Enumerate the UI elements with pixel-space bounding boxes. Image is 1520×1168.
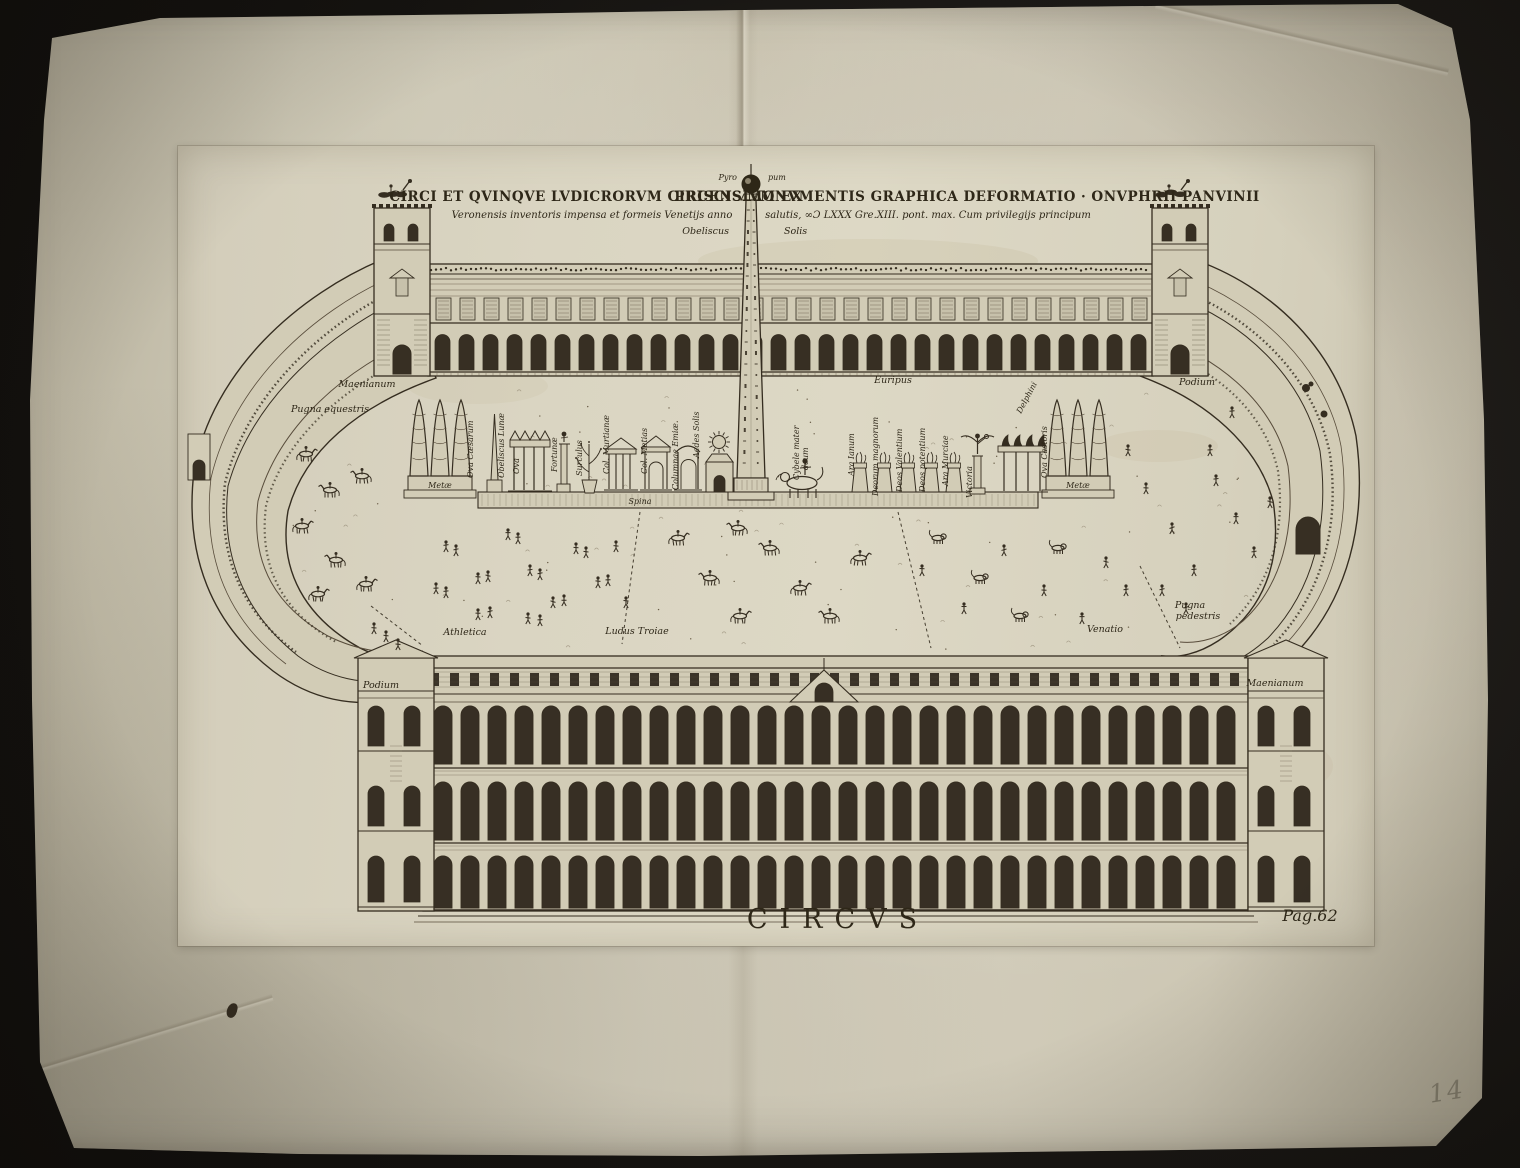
label-ludus-troiae: Ludus Troiae bbox=[604, 626, 669, 637]
label-spina: Spina bbox=[628, 497, 651, 506]
obelisk-name-left: Obeliscus bbox=[682, 226, 729, 237]
label-euripus: Euripus bbox=[873, 375, 912, 386]
label-maenianum-bottom: Maenianum bbox=[1245, 678, 1303, 689]
photograph-background: CIRCI ET QVINQVE LVDICRORVM CIRCENSIVM E… bbox=[0, 0, 1520, 1168]
title-line2-right: salutis, ∞Ɔ LXXX Gre.XIII. pont. max. Cu… bbox=[765, 210, 1091, 221]
label-fortunae: Fortunæ bbox=[550, 437, 559, 473]
label-pugna-pedestris-1: Pugna bbox=[1174, 600, 1206, 611]
label-venatio: Venatio bbox=[1087, 624, 1123, 635]
label-pugna-equestris: Pugna equestris bbox=[290, 404, 369, 415]
page-reference: Pag.62 bbox=[1281, 906, 1337, 925]
label-podium-left: Podium bbox=[362, 680, 399, 691]
title-line2-left: Veronensis inventoris impensa et formeis… bbox=[452, 210, 733, 221]
label-deos-valentium: Deos Valentium bbox=[895, 428, 904, 493]
label-podium-right: Podium bbox=[1178, 377, 1215, 388]
label-pugna-pedestris-2: pedestris bbox=[1176, 611, 1221, 622]
label-ova: Ova bbox=[512, 458, 521, 474]
label-deorum-magnorum: Deorum magnorum bbox=[871, 417, 880, 497]
label-col-metias: Col. Metias bbox=[640, 428, 649, 474]
bottom-facade bbox=[354, 640, 1328, 922]
label-surculus: Surculus bbox=[575, 440, 584, 476]
label-delphini: Delphini bbox=[1014, 380, 1039, 416]
arena-dividers bbox=[371, 512, 1180, 648]
obelisk-top-label-right: pum bbox=[768, 173, 786, 182]
engraved-plate: CIRCI ET QVINQVE LVDICRORVM CIRCENSIVM E… bbox=[178, 146, 1374, 946]
label-columnae-emiae: Columnae Emiæ bbox=[671, 423, 680, 490]
label-obeliscus-lunae: Obeliscus Lunæ bbox=[497, 412, 506, 478]
label-col-murtianae: Col. Murtianæ bbox=[602, 415, 611, 474]
circus-engraving: CIRCI ET QVINQVE LVDICRORVM CIRCENSIVM E… bbox=[178, 146, 1374, 946]
label-meta-right: Metæ bbox=[1065, 481, 1090, 490]
label-meta-left: Metæ bbox=[427, 481, 452, 490]
label-ara-murciae: Ara Murciae bbox=[941, 435, 950, 487]
label-aedes-solis: Aedes Solis bbox=[692, 411, 701, 459]
label-ara-ianum: Ara Ianum bbox=[847, 433, 856, 477]
label-maenianum-top: Maenianum bbox=[337, 379, 395, 390]
label-cybele-line2: deum bbox=[801, 447, 810, 470]
obelisk-name-right: Solis bbox=[784, 226, 807, 237]
paper-sheet: CIRCI ET QVINQVE LVDICRORVM CIRCENSIVM E… bbox=[0, 0, 1520, 1168]
top-wall bbox=[428, 264, 1153, 376]
handwritten-page-number: 14 bbox=[1427, 1074, 1467, 1108]
label-deos-potentium: Deos potentium bbox=[918, 427, 927, 493]
obelisk-top-label-left: Pyro bbox=[717, 173, 737, 182]
caption-circus: CIRCVS bbox=[747, 904, 929, 935]
ink-mark bbox=[225, 1002, 238, 1019]
label-ova-caesarum: Ova Cæsarum bbox=[466, 420, 475, 478]
label-athletica: Athletica bbox=[442, 627, 486, 638]
top-right-crease bbox=[1155, 0, 1449, 76]
engraving-architecture bbox=[188, 164, 1359, 922]
label-ova-castoris: Ova Castoris bbox=[1040, 426, 1049, 478]
label-victoria: Victoria bbox=[965, 466, 974, 498]
title-line1-right: PRISCIS MONVMENTIS GRAPHICA DEFORMATIO ·… bbox=[674, 189, 1259, 205]
label-cybele-line1: Cybele mater bbox=[792, 424, 801, 480]
